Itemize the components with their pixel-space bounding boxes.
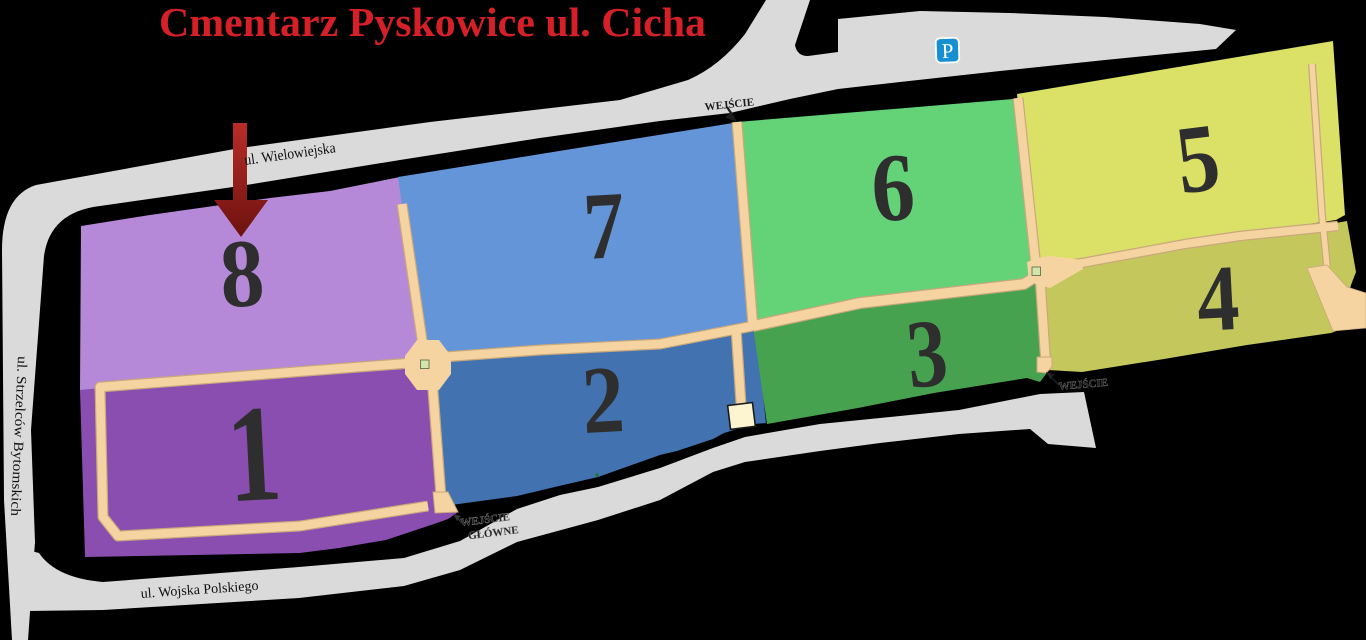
svg-text:6: 6	[869, 133, 918, 242]
svg-text:7: 7	[581, 171, 628, 280]
svg-text:4: 4	[1194, 246, 1241, 352]
svg-text:Cmentarz Pyskowice ul. Cicha: Cmentarz Pyskowice ul. Cicha	[159, 0, 706, 45]
svg-text:P: P	[941, 39, 954, 63]
svg-text:1: 1	[223, 376, 285, 532]
svg-text:2: 2	[579, 345, 627, 454]
